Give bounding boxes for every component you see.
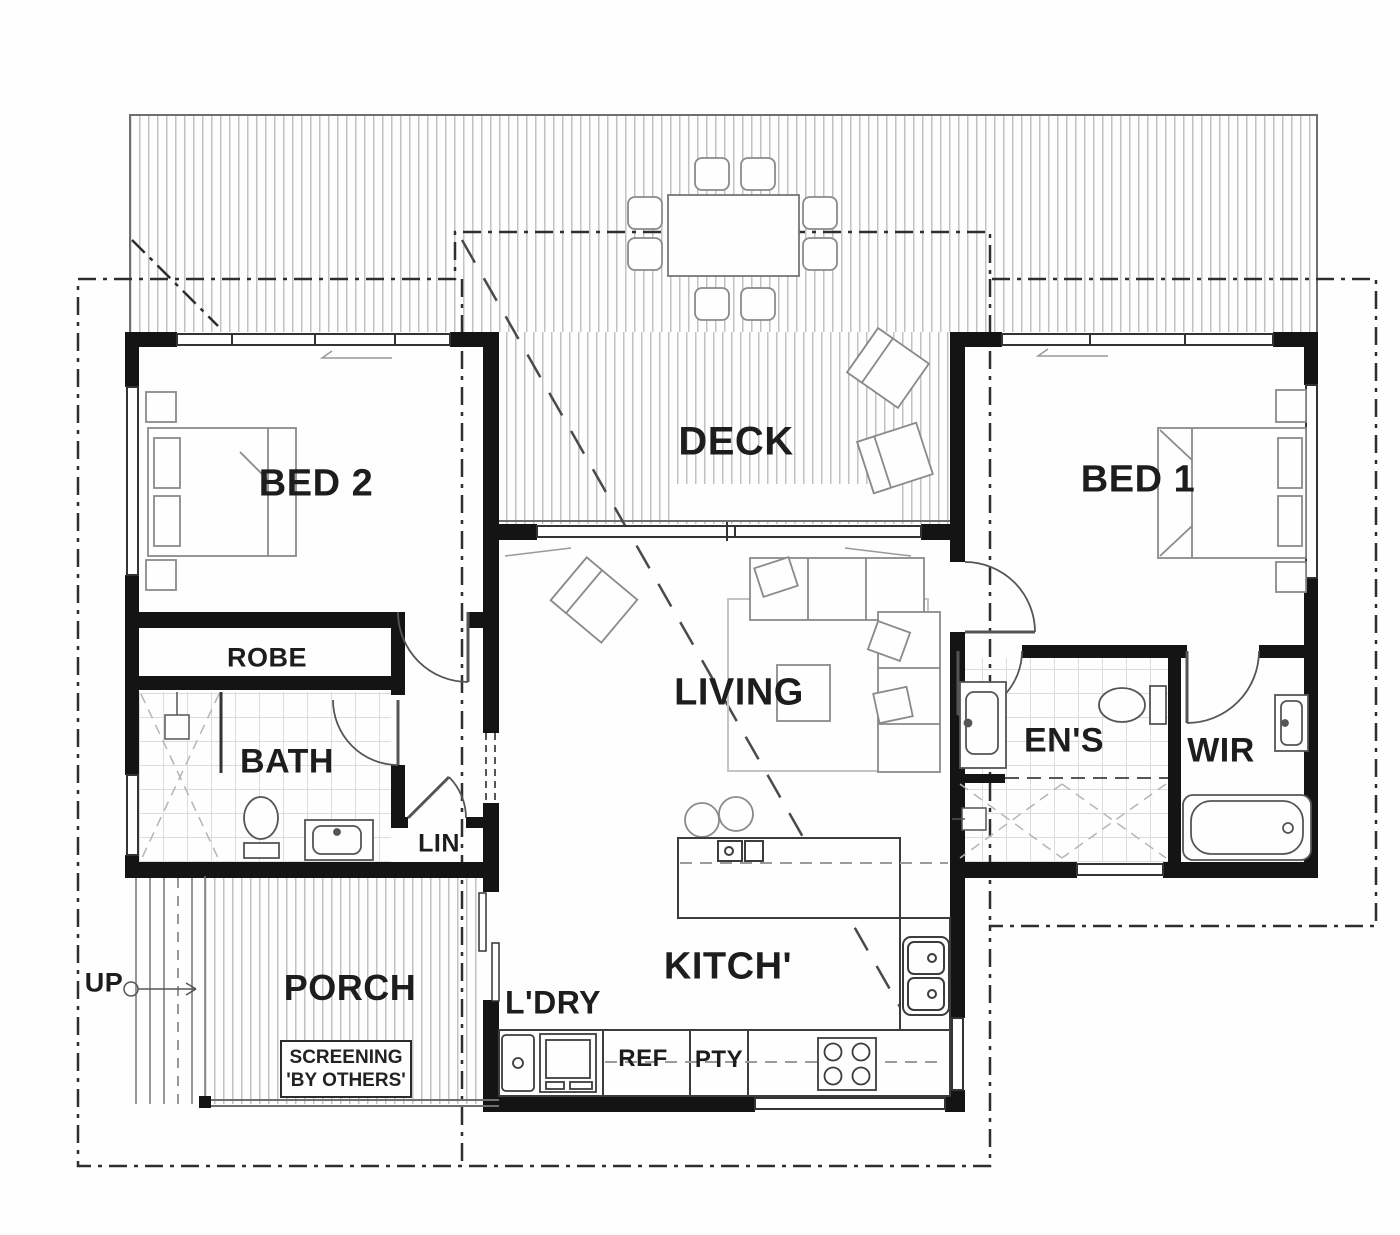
room-label-bed2: BED 2 xyxy=(259,463,373,506)
bathtub-icon xyxy=(1183,795,1311,860)
room-label-kitchen: KITCH' xyxy=(664,946,792,989)
room-label-living: LIVING xyxy=(674,672,804,715)
ensuite-toilet-icon xyxy=(1099,686,1166,724)
ensuite-shower-icon xyxy=(952,778,1168,858)
kitchen-sink-icon xyxy=(903,937,949,1015)
screening-note: SCREENING 'BY OTHERS' xyxy=(280,1040,412,1098)
room-label-bed1: BED 1 xyxy=(1081,459,1195,502)
room-label-bath: BATH xyxy=(240,743,334,782)
hall-slider-door xyxy=(486,733,495,803)
ensuite-vanity-icon xyxy=(960,682,1006,768)
cooktop-icon xyxy=(818,1038,876,1090)
room-label-wir: WIR xyxy=(1187,732,1255,771)
outdoor-armchair-icon xyxy=(857,423,933,494)
floor-plan: DECK BED 2 BED 1 ROBE BATH LIN LIVING EN… xyxy=(0,0,1400,1235)
laundry-slider-door xyxy=(479,893,499,1001)
bath-vanity-icon xyxy=(305,820,373,860)
room-label-deck: DECK xyxy=(678,420,793,465)
armchair-icon xyxy=(551,557,638,642)
room-label-ensuite: EN'S xyxy=(1024,722,1104,761)
room-label-linen: LIN xyxy=(418,830,460,859)
stair-up-label: UP xyxy=(85,968,124,999)
room-label-laundry: L'DRY xyxy=(505,985,601,1022)
room-label-pantry: PTY xyxy=(695,1046,743,1074)
screening-note-line1: SCREENING xyxy=(284,1046,408,1069)
up-arrow xyxy=(124,982,196,996)
room-label-robe: ROBE xyxy=(227,643,307,674)
washing-machine-icon xyxy=(540,1034,596,1092)
room-label-fridge: REF xyxy=(618,1045,668,1073)
screening-note-line2: 'BY OTHERS' xyxy=(284,1069,408,1092)
dining-table-icon xyxy=(668,195,799,276)
bath-toilet-icon xyxy=(244,797,279,858)
laundry-tub-icon xyxy=(502,1035,534,1091)
wir-cabinet-icon xyxy=(1275,695,1308,751)
bath-shower-icon xyxy=(141,692,221,860)
outdoor-armchair-icon xyxy=(847,328,929,408)
room-label-porch: PORCH xyxy=(284,967,417,1009)
